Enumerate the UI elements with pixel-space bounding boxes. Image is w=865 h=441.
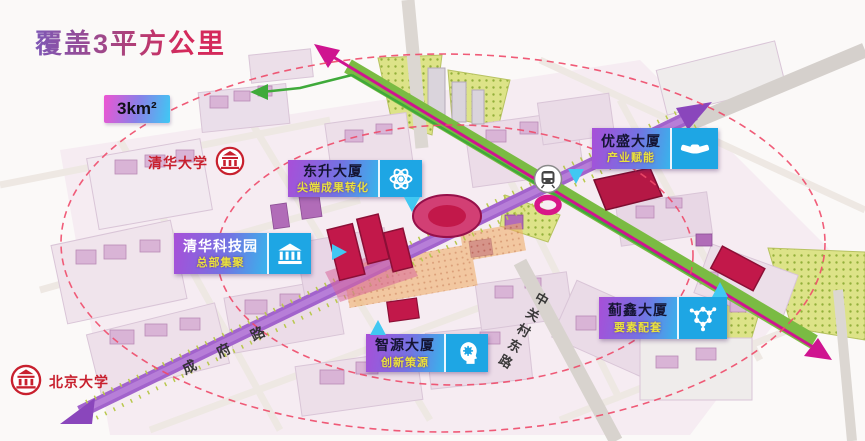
atom-icon bbox=[378, 160, 422, 197]
building-tagline: 要素配套 bbox=[614, 319, 662, 335]
building-name: 蓟鑫大厦 bbox=[608, 302, 668, 319]
building-name: 清华科技园 bbox=[183, 238, 258, 255]
area-badge: 3km² bbox=[104, 95, 170, 123]
molecule-icon bbox=[677, 297, 727, 339]
brain-icon bbox=[444, 334, 488, 372]
building-tagline: 产业赋能 bbox=[607, 149, 655, 165]
pointer-zhiyuan bbox=[370, 320, 386, 335]
slide: 覆盖3平方公里 3km² 清华大学 北京大学 东升大厦 尖端成果转化 清华科技园… bbox=[0, 0, 865, 441]
page-title: 覆盖3平方公里 bbox=[35, 22, 226, 61]
marker-peking-university: 北京大学 bbox=[10, 364, 109, 399]
bank-icon bbox=[267, 233, 311, 274]
city-map bbox=[0, 0, 865, 441]
building-name: 智源大厦 bbox=[375, 337, 435, 354]
label-jixin-tower: 蓟鑫大厦 要素配套 bbox=[599, 297, 727, 339]
university-name: 清华大学 bbox=[148, 153, 208, 173]
building-tagline: 创新策源 bbox=[381, 354, 429, 370]
building-name: 东升大厦 bbox=[303, 163, 363, 180]
school-icon bbox=[10, 364, 42, 399]
label-zhiyuan-tower: 智源大厦 创新策源 bbox=[366, 334, 488, 372]
building-tagline: 总部集聚 bbox=[197, 254, 245, 270]
label-yousheng-tower: 优盛大厦 产业赋能 bbox=[592, 128, 718, 169]
pointer-tsinghua-science-park bbox=[332, 244, 347, 260]
label-dongsheng-tower: 东升大厦 尖端成果转化 bbox=[288, 160, 422, 197]
handshake-icon bbox=[670, 128, 718, 169]
school-icon bbox=[215, 146, 245, 179]
marker-tsinghua-university: 清华大学 bbox=[148, 146, 245, 179]
pointer-dongsheng bbox=[404, 197, 420, 212]
university-name: 北京大学 bbox=[49, 372, 109, 392]
zhiyuan-building bbox=[387, 298, 419, 322]
label-tsinghua-science-park: 清华科技园 总部集聚 bbox=[174, 233, 311, 274]
pointer-yousheng bbox=[568, 169, 584, 184]
building-name: 优盛大厦 bbox=[601, 133, 661, 150]
building-tagline: 尖端成果转化 bbox=[297, 179, 369, 195]
pointer-jixin bbox=[712, 282, 728, 297]
